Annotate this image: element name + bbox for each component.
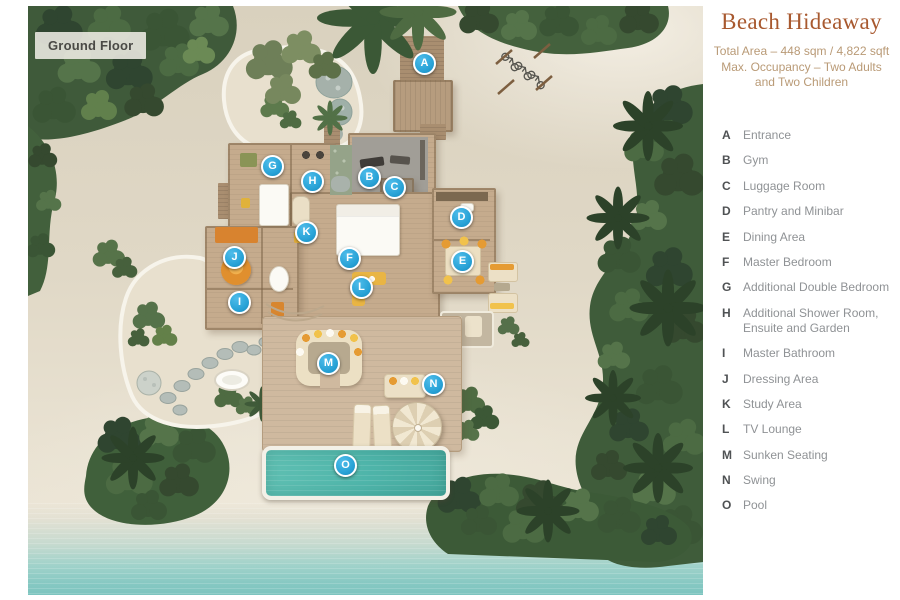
marker-letter: G — [268, 160, 277, 172]
marker-n[interactable]: N — [422, 373, 445, 396]
marker-b[interactable]: B — [358, 166, 381, 189]
marker-letter: E — [459, 255, 466, 267]
marker-c[interactable]: C — [383, 176, 406, 199]
marker-letter: H — [309, 175, 317, 187]
marker-letter: K — [303, 226, 311, 238]
marker-e[interactable]: E — [451, 250, 474, 273]
marker-letter: I — [238, 296, 241, 308]
marker-i[interactable]: I — [228, 291, 251, 314]
marker-m[interactable]: M — [317, 352, 340, 375]
marker-layer: A B C D E F G H I J K L M N O — [0, 0, 900, 600]
marker-a[interactable]: A — [413, 52, 436, 75]
marker-g[interactable]: G — [261, 155, 284, 178]
marker-letter: J — [231, 251, 237, 263]
page: Ground Floor A B C D E F G H I J K L M N… — [0, 0, 900, 600]
marker-letter: A — [421, 57, 429, 69]
marker-f[interactable]: F — [338, 247, 361, 270]
marker-letter: L — [358, 281, 365, 293]
marker-l[interactable]: L — [350, 276, 373, 299]
marker-letter: B — [366, 171, 374, 183]
marker-o[interactable]: O — [334, 454, 357, 477]
marker-letter: M — [324, 357, 333, 369]
marker-letter: D — [458, 211, 466, 223]
marker-letter: C — [391, 181, 399, 193]
marker-letter: F — [346, 252, 353, 264]
marker-letter: N — [430, 378, 438, 390]
marker-letter: O — [341, 459, 350, 471]
ground-floor-badge: Ground Floor — [35, 32, 146, 59]
marker-k[interactable]: K — [295, 221, 318, 244]
marker-j[interactable]: J — [223, 246, 246, 269]
marker-d[interactable]: D — [450, 206, 473, 229]
marker-h[interactable]: H — [301, 170, 324, 193]
